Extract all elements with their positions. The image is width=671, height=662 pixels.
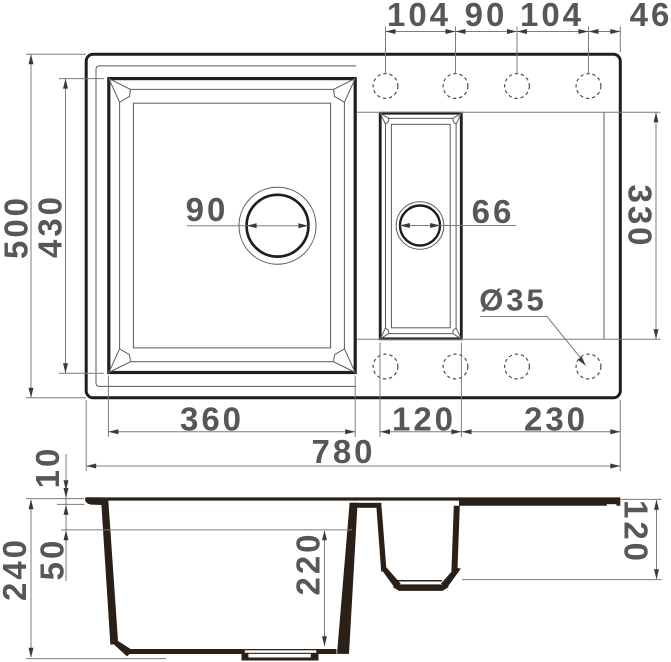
svg-text:360: 360 — [180, 401, 244, 438]
svg-text:230: 230 — [524, 401, 588, 438]
svg-text:90: 90 — [186, 191, 229, 228]
svg-text:66: 66 — [472, 193, 515, 230]
svg-text:104: 104 — [387, 0, 451, 33]
svg-text:10: 10 — [29, 446, 66, 489]
svg-text:120: 120 — [618, 500, 655, 564]
svg-text:240: 240 — [0, 537, 33, 601]
svg-text:780: 780 — [311, 433, 375, 470]
svg-text:Ø35: Ø35 — [479, 283, 547, 318]
svg-text:220: 220 — [290, 531, 327, 595]
svg-text:46: 46 — [630, 0, 671, 33]
svg-text:50: 50 — [34, 538, 71, 581]
svg-text:500: 500 — [0, 195, 35, 259]
svg-text:120: 120 — [392, 401, 456, 438]
svg-text:90: 90 — [465, 0, 508, 33]
svg-text:104: 104 — [520, 0, 584, 33]
svg-text:430: 430 — [32, 194, 69, 258]
svg-text:330: 330 — [622, 184, 659, 248]
